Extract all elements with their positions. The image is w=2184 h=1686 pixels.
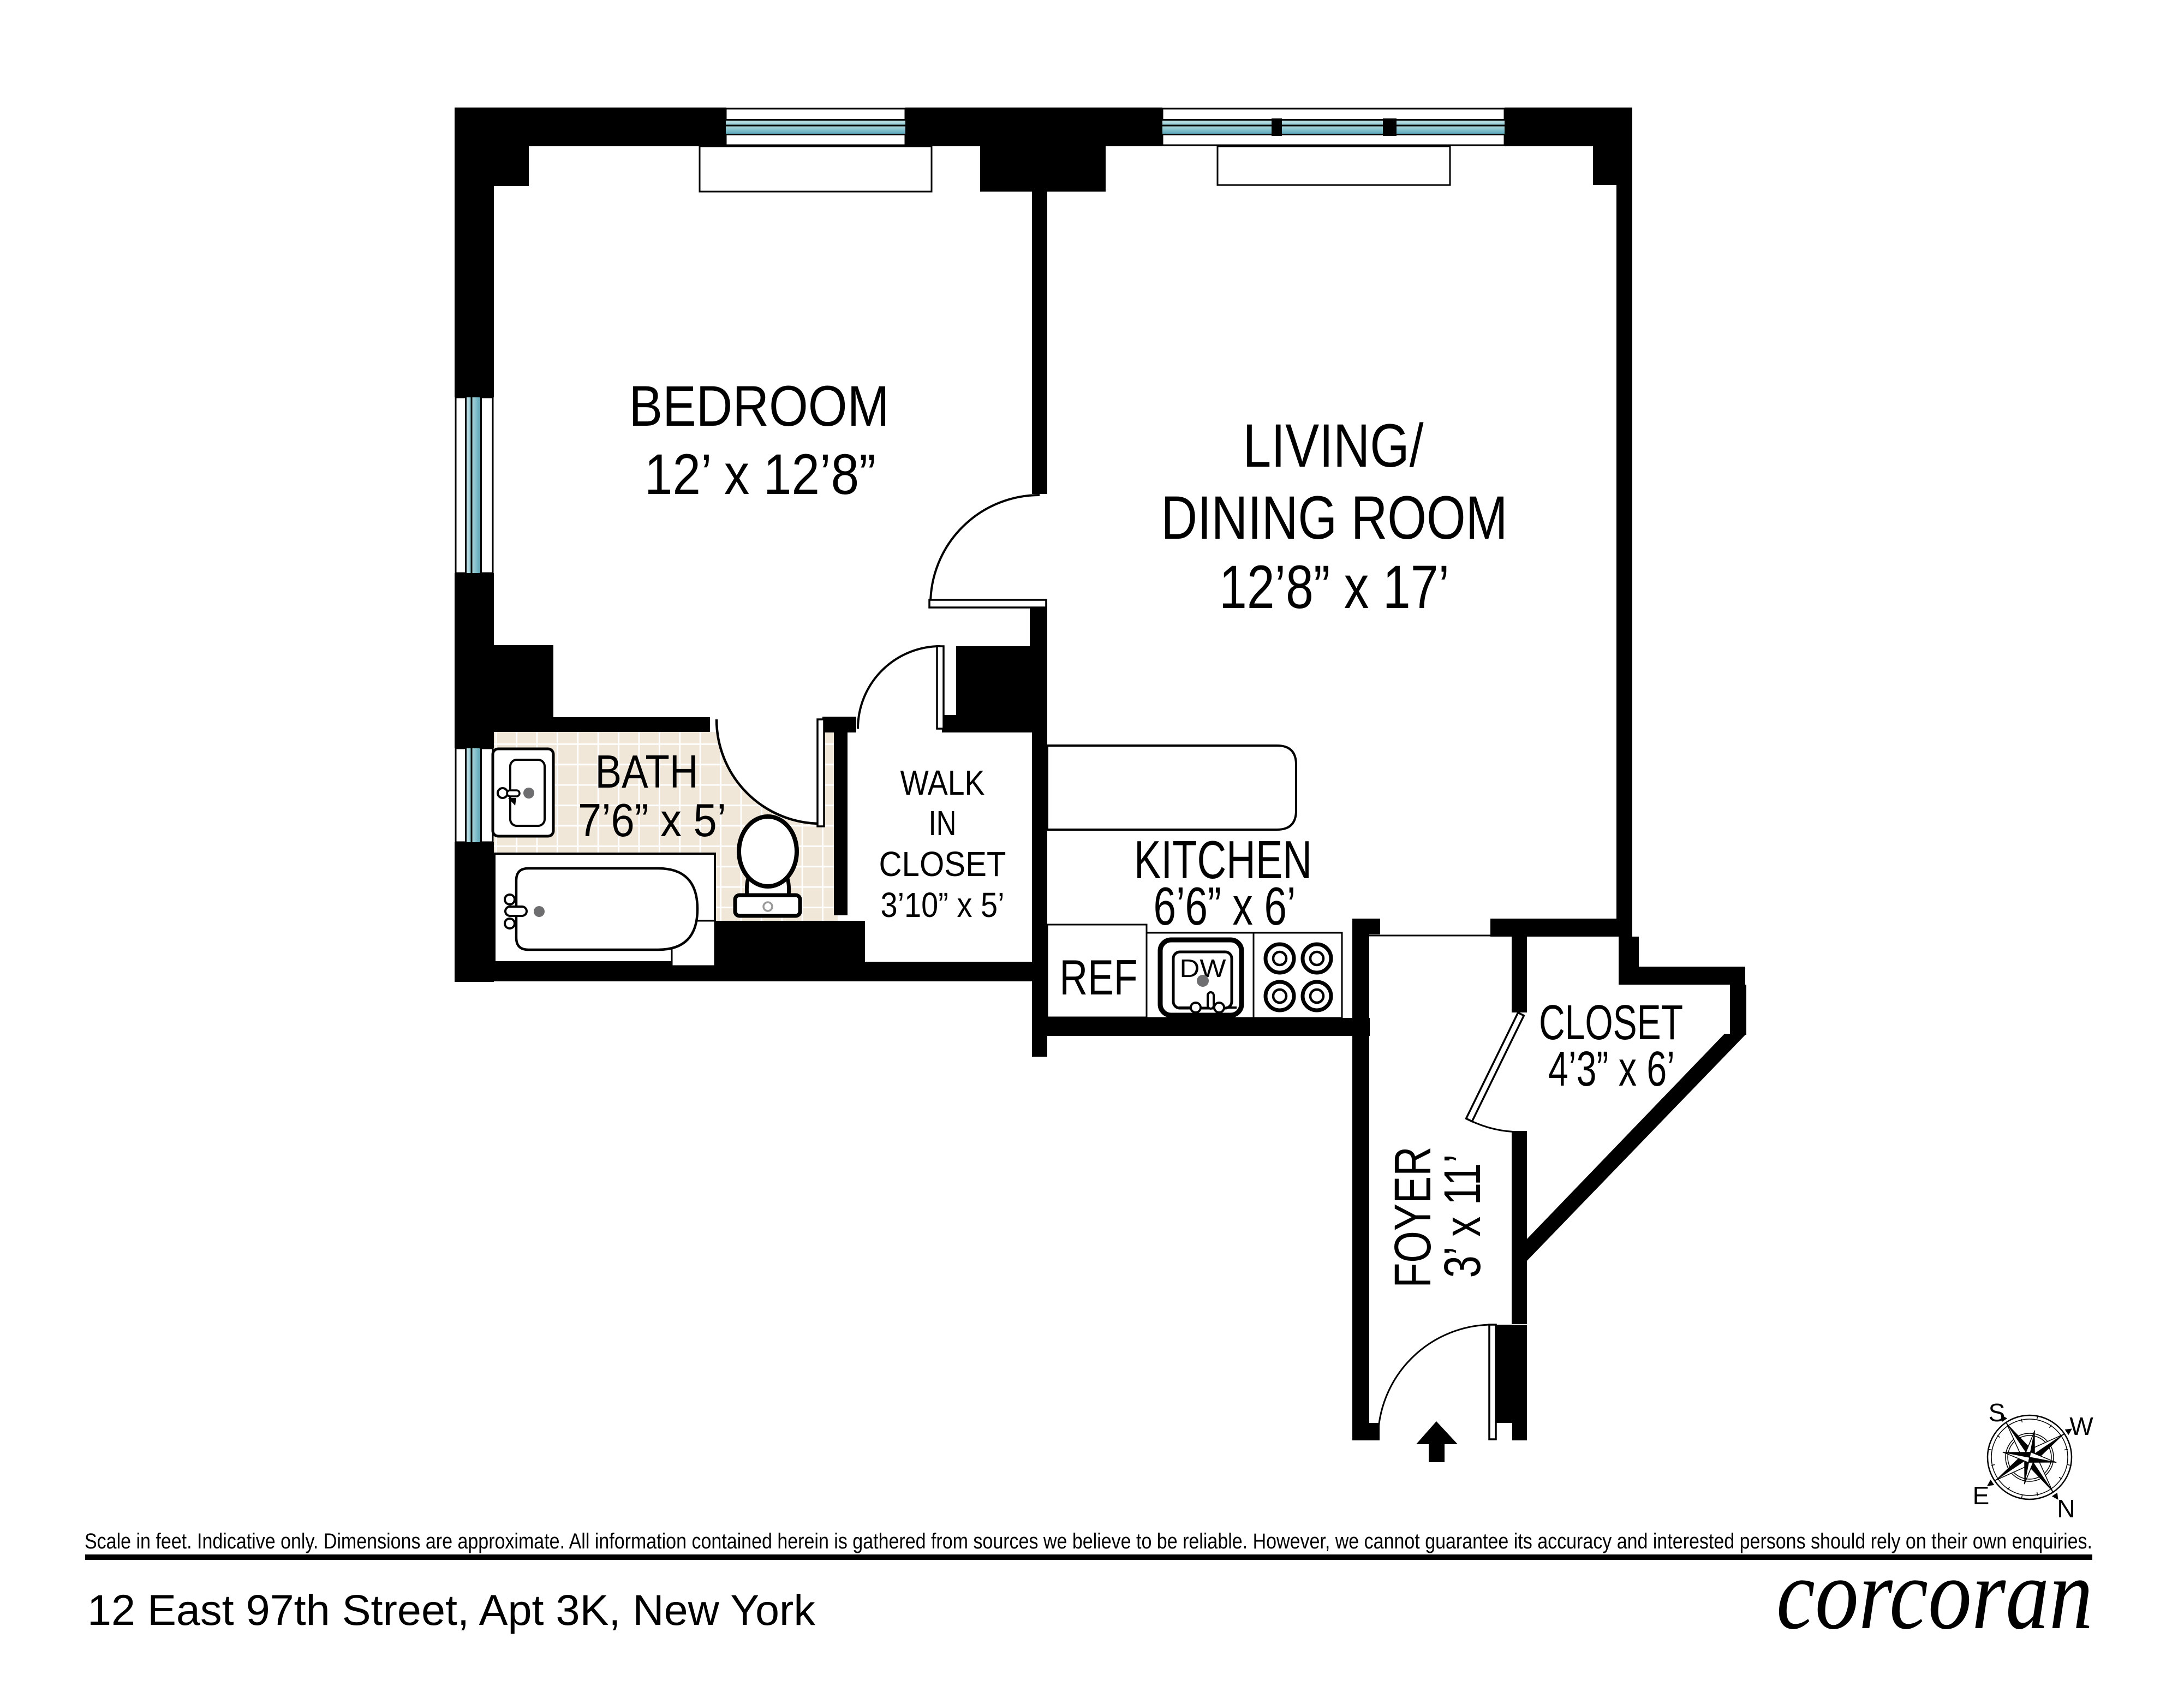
svg-text:BEDROOM: BEDROOM (629, 374, 890, 438)
svg-text:IN: IN (929, 803, 957, 843)
svg-text:12’8” x 17’: 12’8” x 17’ (1219, 553, 1449, 621)
svg-text:12 East 97th Street, Apt 3K, N: 12 East 97th Street, Apt 3K, New York (87, 1586, 816, 1634)
svg-text:REF: REF (1060, 950, 1138, 1005)
svg-text:DINING ROOM: DINING ROOM (1161, 484, 1508, 552)
svg-text:LIVING/: LIVING/ (1243, 412, 1424, 480)
svg-text:S: S (1989, 1398, 2006, 1427)
svg-text:3’10” x 5’: 3’10” x 5’ (881, 885, 1005, 925)
svg-text:W: W (2069, 1412, 2093, 1440)
svg-text:WALK: WALK (900, 763, 985, 802)
svg-text:corcoran: corcoran (1776, 1538, 2093, 1651)
svg-text:CLOSET: CLOSET (879, 844, 1006, 884)
svg-text:E: E (1973, 1481, 1990, 1510)
svg-text:BATH: BATH (595, 746, 699, 798)
svg-text:4’3” x 6’: 4’3” x 6’ (1548, 1042, 1675, 1097)
svg-text:3’ x 11’: 3’ x 11’ (1434, 1154, 1491, 1278)
svg-text:N: N (2057, 1494, 2075, 1523)
svg-text:12’ x 12’8”: 12’ x 12’8” (645, 443, 876, 507)
svg-text:7’6” x 5’: 7’6” x 5’ (578, 795, 726, 847)
svg-text:6’6” x 6’: 6’6” x 6’ (1154, 876, 1296, 936)
